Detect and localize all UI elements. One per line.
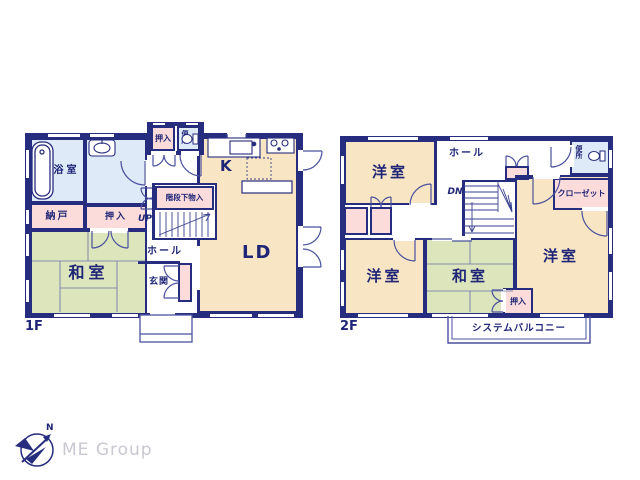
- window: [608, 228, 613, 254]
- room-western-left-2f: 洋室: [344, 238, 425, 315]
- window: [450, 136, 488, 141]
- door-opening: [298, 226, 303, 267]
- western-room-top-label: 洋室: [372, 165, 408, 180]
- door-opening: [227, 133, 246, 138]
- western-room-right-label: 洋室: [543, 249, 579, 264]
- window: [25, 210, 30, 224]
- door-opening: [144, 160, 150, 186]
- toilet-label-1f: 便所: [181, 130, 188, 144]
- walk-in-closet-label: クローゼット: [558, 190, 606, 198]
- closet-label: 押入: [105, 213, 127, 222]
- floor1-label: 1F: [25, 320, 55, 333]
- entrance-wall: [138, 261, 180, 264]
- window: [48, 133, 80, 138]
- room-toilet-2f: 便所: [570, 140, 610, 175]
- living-dining-label: LD: [242, 244, 272, 262]
- entrance-shoe-cabinet: [178, 263, 192, 302]
- window: [258, 313, 294, 318]
- bathroom-label: 浴室: [54, 166, 80, 176]
- entrance-label: 玄関: [139, 278, 179, 287]
- window: [54, 313, 90, 318]
- room-understair-storage: 階段下物入: [155, 186, 214, 210]
- staircase-block-2f: [462, 180, 517, 240]
- room-washroom-1f: [85, 138, 147, 205]
- window: [25, 234, 30, 256]
- window: [112, 313, 138, 318]
- window: [608, 150, 613, 168]
- hall-label-1f: ホール: [141, 247, 189, 257]
- window: [432, 313, 488, 318]
- floor2-label: 2F: [340, 320, 370, 333]
- window: [186, 122, 198, 126]
- door-opening: [569, 145, 574, 167]
- compass-icon: [15, 434, 53, 466]
- window: [340, 156, 345, 184]
- room-storage-1f: 納戸: [30, 203, 85, 230]
- storage-label: 納戸: [46, 212, 70, 222]
- room-bathroom-1f: 浴室: [30, 138, 85, 203]
- window: [368, 136, 418, 141]
- balcony-label: システムバルコニー: [440, 324, 598, 334]
- hall-label-2f: ホール: [443, 149, 491, 159]
- window: [25, 280, 30, 302]
- understair-storage-label: 階段下物入: [166, 194, 204, 202]
- room-closet-small-2f: 押入: [503, 288, 533, 315]
- floorplan-canvas: 浴室 納戸 押入 和室 K LD 押入 便所 階段下物入 ホール UP 玄関 1…: [0, 0, 640, 480]
- room-closet-top-1f: 押入: [151, 126, 175, 151]
- closet-top-label: 押入: [155, 135, 171, 143]
- room-walk-in-closet: クローゼット: [553, 178, 610, 210]
- closet-b-2f: [370, 207, 392, 235]
- room-tatami-1f: 和室: [30, 230, 147, 315]
- door-opening: [533, 175, 560, 179]
- window: [540, 313, 584, 318]
- window: [358, 313, 408, 318]
- door-opening: [432, 236, 471, 241]
- room-western-top-2f: 洋室: [344, 140, 437, 205]
- door-opening: [181, 151, 199, 156]
- closet-a-2f: [344, 207, 368, 235]
- entrance-porch: [140, 315, 192, 342]
- window: [90, 133, 114, 138]
- western-room-left-label: 洋室: [366, 269, 402, 284]
- stairs-down-label: DN: [444, 188, 466, 197]
- door-opening: [150, 313, 175, 318]
- tatami-room-2f-label: 和室: [452, 269, 488, 284]
- window: [210, 313, 252, 318]
- window: [608, 272, 613, 300]
- door-opening: [196, 246, 200, 290]
- door-opening: [298, 150, 303, 171]
- window: [25, 150, 30, 178]
- tatami-room-label: 和室: [68, 265, 108, 281]
- door-opening: [582, 207, 608, 211]
- window: [153, 122, 165, 126]
- stairs-up-label: UP: [134, 215, 156, 224]
- closet-small-label: 押入: [510, 298, 526, 306]
- company-logo-text: ME Group: [62, 440, 153, 460]
- door-opening: [151, 151, 176, 156]
- kitchen-label: K: [220, 159, 232, 174]
- hall-wall-2f: [515, 175, 535, 179]
- compass-north-label: N: [46, 424, 54, 433]
- door-opening: [409, 203, 431, 207]
- door-opening: [90, 228, 128, 233]
- window: [340, 250, 345, 270]
- window: [340, 282, 345, 306]
- toilet-label-2f: 便所: [575, 145, 582, 159]
- door-opening: [501, 289, 506, 312]
- door-opening: [393, 236, 415, 241]
- room-toilet-1f: 便所: [177, 126, 200, 151]
